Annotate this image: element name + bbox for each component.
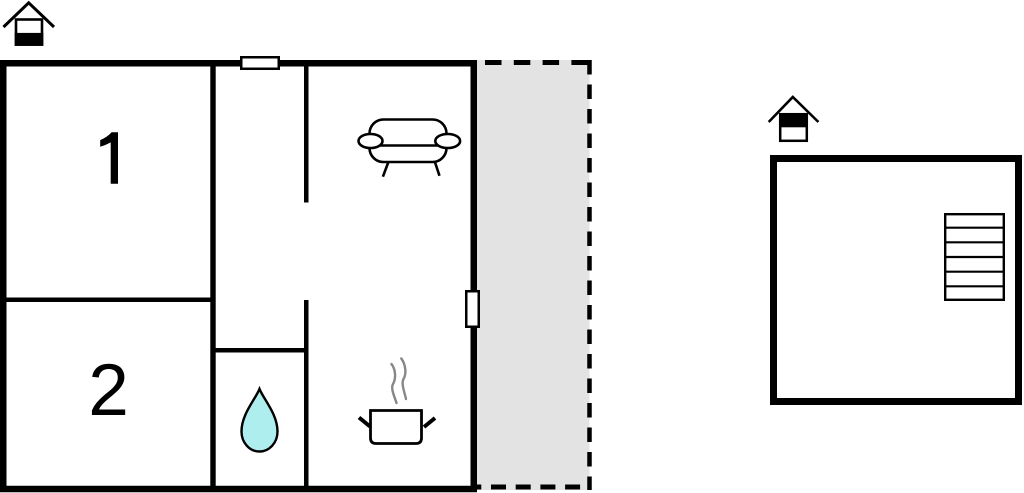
svg-text:2: 2	[88, 350, 129, 431]
